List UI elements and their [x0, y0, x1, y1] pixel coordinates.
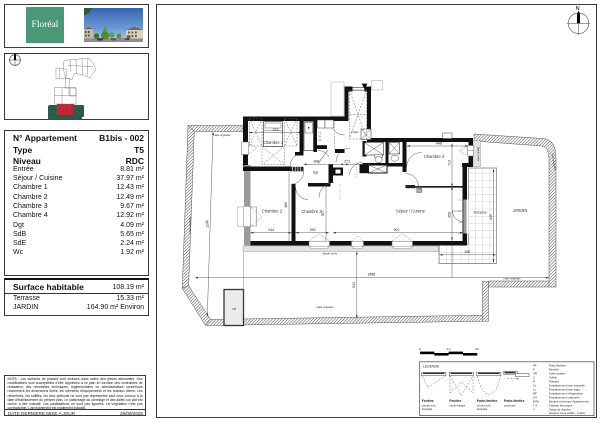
svg-text:1298: 1298 — [205, 220, 209, 228]
svg-text:française: française — [477, 407, 488, 411]
svg-text:C.Elec: C.Elec — [351, 130, 359, 134]
svg-text:188: 188 — [313, 160, 319, 164]
svg-text:Dgt: Dgt — [313, 171, 318, 175]
svg-text:Bande stérile: Bande stérile — [477, 147, 480, 162]
svg-text:2485: 2485 — [368, 273, 376, 277]
svg-text:2m: 2m — [475, 347, 480, 351]
svg-text:N: N — [576, 6, 580, 12]
svg-text:Fenêtre: Fenêtre — [422, 399, 434, 403]
svg-text:Y: Y — [533, 408, 535, 412]
svg-text:448: 448 — [436, 141, 442, 145]
svg-text:Haie végétale: Haie végétale — [503, 277, 521, 281]
svg-text:Bande stérile: Bande stérile — [323, 252, 338, 255]
svg-text:902: 902 — [394, 228, 400, 232]
svg-text:1m: 1m — [447, 347, 452, 351]
svg-text:Haie végétale: Haie végétale — [188, 216, 192, 234]
svg-text:367: 367 — [321, 211, 325, 217]
svg-text:Chambre 4: Chambre 4 — [424, 154, 445, 159]
svg-text:290: 290 — [310, 228, 316, 232]
svg-text:LV: LV — [319, 139, 322, 142]
svg-text:644: 644 — [352, 282, 356, 288]
svg-text:Chambre 2: Chambre 2 — [262, 209, 283, 214]
svg-text:358: 358 — [447, 212, 451, 218]
svg-text:Terrasse: Terrasse — [473, 211, 487, 215]
svg-text:Fenêtre: Fenêtre — [449, 399, 461, 403]
svg-text:française: française — [422, 407, 433, 411]
svg-text:Chambre 3: Chambre 3 — [301, 209, 322, 214]
svg-text:Haie végétale: Haie végétale — [316, 305, 334, 309]
svg-text:Hauteur sous soffite : 2,20m: Hauteur sous soffite : 2,20m — [549, 411, 586, 415]
svg-text:Séjour / Cuisine: Séjour / Cuisine — [396, 209, 426, 214]
svg-text:coulissant: coulissant — [504, 404, 516, 408]
svg-text:0: 0 — [419, 347, 421, 351]
svg-text:oscillo-battant: oscillo-battant — [449, 404, 465, 408]
svg-text:273: 273 — [344, 160, 350, 164]
svg-text:VB: VB — [232, 307, 236, 311]
svg-text:JARDIN: JARDIN — [513, 208, 528, 213]
svg-text:Porte-fenêtre: Porte-fenêtre — [504, 399, 525, 403]
svg-text:373: 373 — [273, 128, 279, 132]
svg-text:LEGENDE: LEGENDE — [423, 365, 440, 369]
svg-text:LL: LL — [319, 132, 322, 135]
svg-text:SL: SL — [319, 135, 323, 138]
svg-text:Porte-fenêtre: Porte-fenêtre — [477, 399, 498, 403]
svg-text:198: 198 — [464, 250, 470, 254]
svg-text:Chambre 1: Chambre 1 — [263, 140, 284, 145]
svg-text:244: 244 — [268, 228, 274, 232]
svg-text:Haie végétale: Haie végétale — [213, 133, 231, 137]
svg-text:466: 466 — [284, 202, 288, 208]
svg-text:713: 713 — [447, 160, 451, 166]
svg-text:449: 449 — [489, 214, 493, 220]
